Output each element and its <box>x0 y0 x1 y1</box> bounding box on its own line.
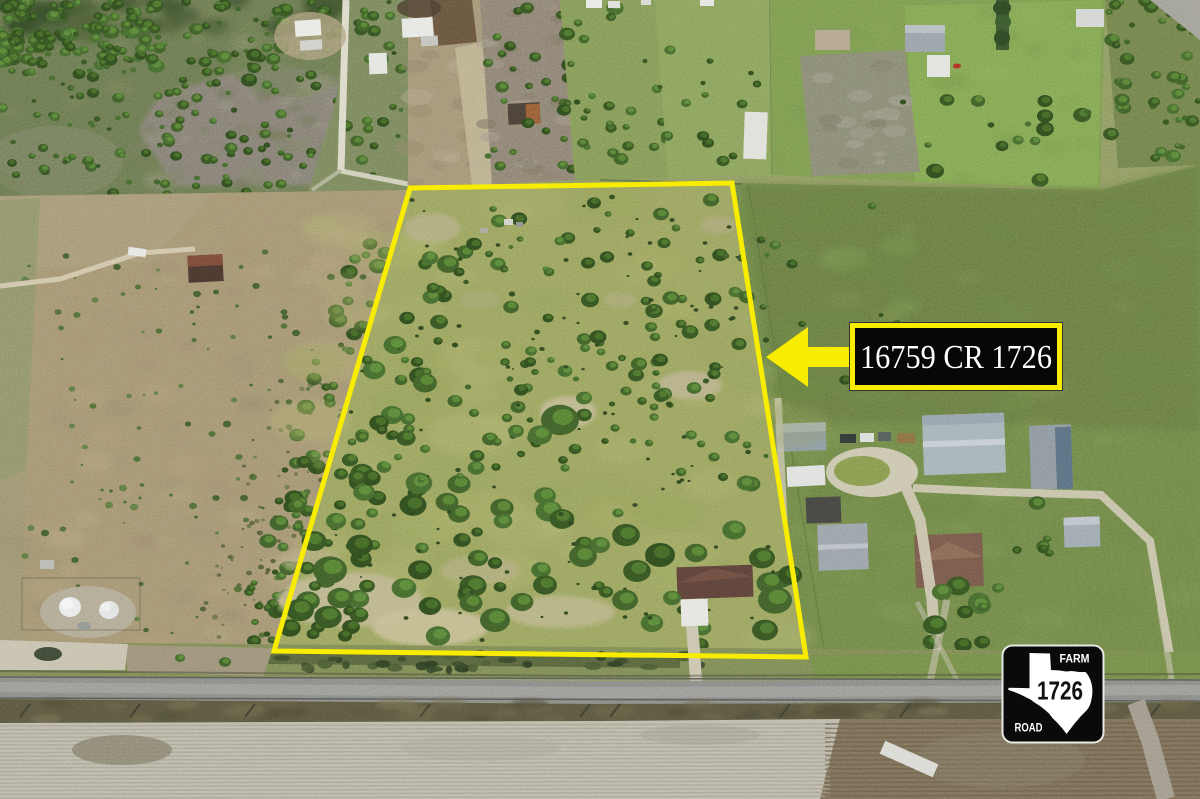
svg-text:ROAD: ROAD <box>1015 721 1043 735</box>
svg-text:FARM: FARM <box>1060 652 1090 666</box>
svg-text:16759 CR 1726: 16759 CR 1726 <box>860 339 1052 376</box>
svg-text:1726: 1726 <box>1037 676 1083 706</box>
